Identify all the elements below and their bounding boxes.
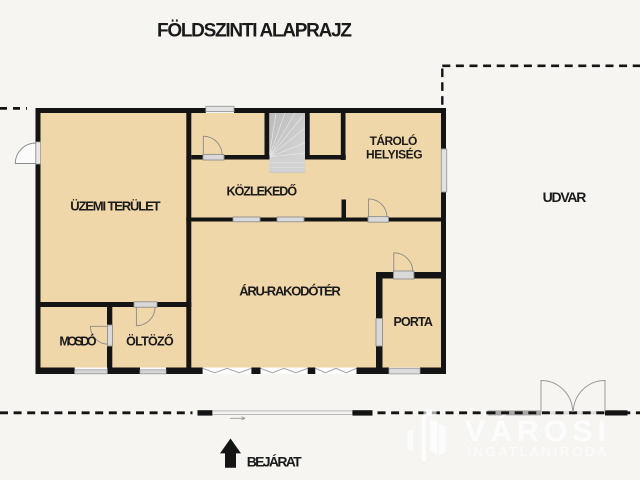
svg-text:UDVAR: UDVAR	[543, 189, 587, 205]
svg-text:HELYISÉG: HELYISÉG	[366, 147, 423, 162]
svg-text:ÁRU-RAKODÓTÉR: ÁRU-RAKODÓTÉR	[239, 283, 341, 298]
svg-text:BEJÁRAT: BEJÁRAT	[247, 454, 302, 470]
svg-text:INGATLANIRODA: INGATLANIRODA	[467, 444, 606, 459]
svg-text:PORTA: PORTA	[394, 315, 433, 329]
svg-text:MOSDÓ: MOSDÓ	[59, 333, 97, 348]
svg-text:FÖLDSZINTI ALAPRAJZ: FÖLDSZINTI ALAPRAJZ	[157, 21, 352, 42]
svg-text:ÜZEMI TERÜLET: ÜZEMI TERÜLET	[70, 198, 160, 213]
svg-text:TÁROLÓ: TÁROLÓ	[370, 133, 418, 148]
svg-text:ÖLTÖZŐ: ÖLTÖZŐ	[126, 333, 174, 348]
svg-text:KÖZLEKEDŐ: KÖZLEKEDŐ	[227, 184, 298, 199]
